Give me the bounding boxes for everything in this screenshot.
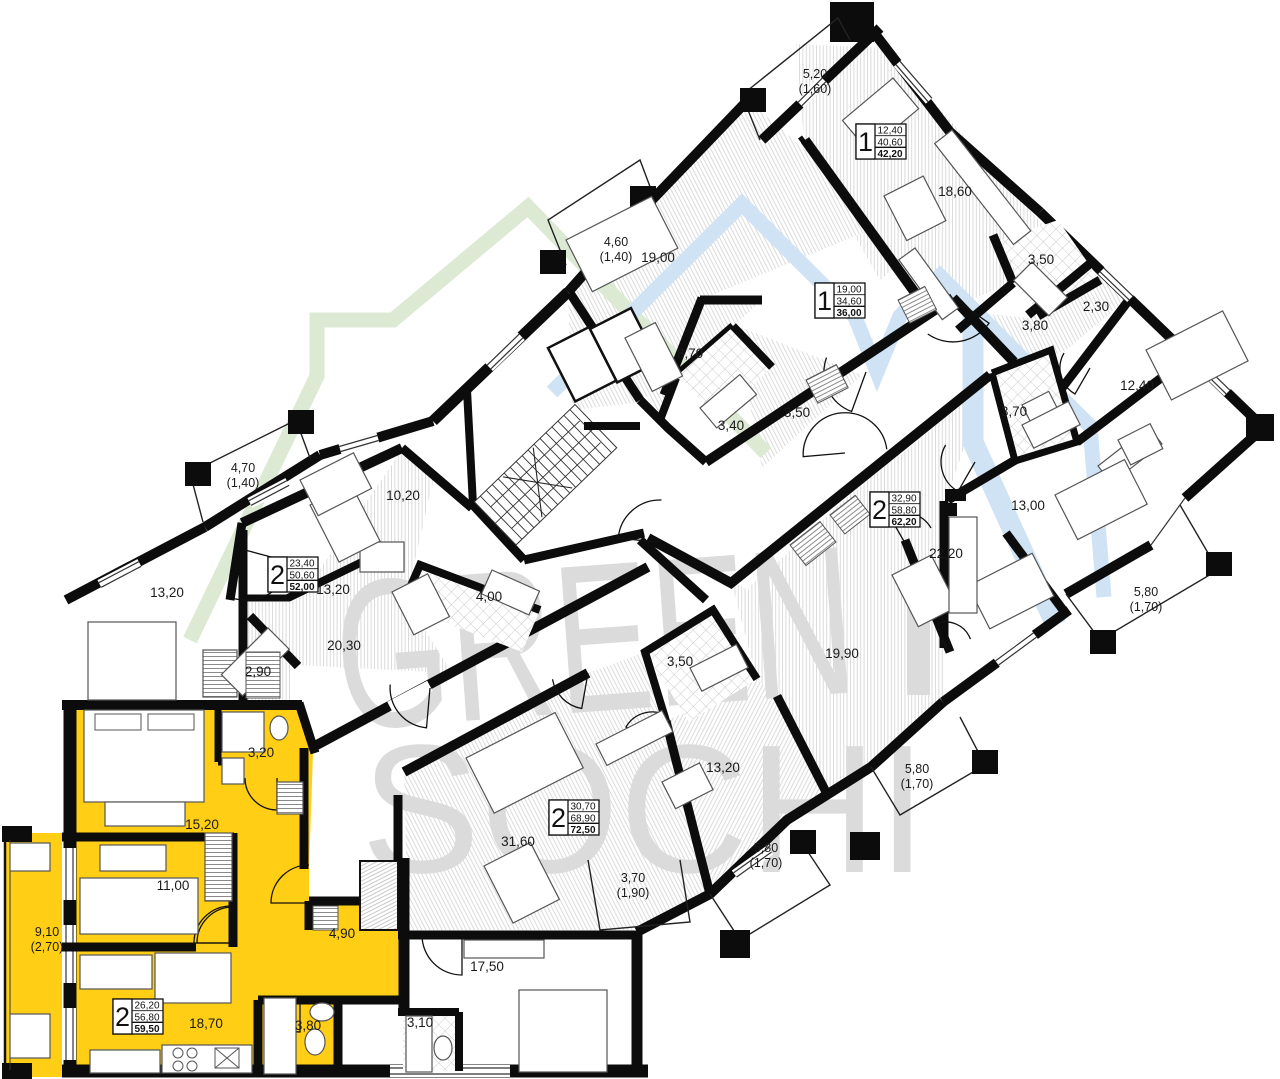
svg-text:13,20: 13,20 <box>150 585 184 600</box>
svg-text:2: 2 <box>551 803 566 833</box>
svg-text:13,00: 13,00 <box>1011 498 1045 513</box>
svg-text:50,60: 50,60 <box>290 570 315 581</box>
svg-text:42,20: 42,20 <box>878 149 903 160</box>
svg-text:11,00: 11,00 <box>157 878 190 893</box>
svg-text:1: 1 <box>858 127 873 157</box>
svg-text:12,40: 12,40 <box>878 126 903 137</box>
svg-text:5,80: 5,80 <box>1134 585 1158 599</box>
svg-text:3,40: 3,40 <box>718 418 744 433</box>
svg-text:31,60: 31,60 <box>501 834 535 849</box>
svg-text:3,50: 3,50 <box>667 654 693 669</box>
svg-text:10,20: 10,20 <box>386 488 420 503</box>
svg-text:(1,40): (1,40) <box>227 476 260 490</box>
svg-text:19,90: 19,90 <box>825 646 859 661</box>
svg-text:22,20: 22,20 <box>929 546 963 561</box>
svg-text:18,60: 18,60 <box>938 184 972 199</box>
svg-text:19,00: 19,00 <box>837 285 862 296</box>
svg-text:52,00: 52,00 <box>290 582 315 593</box>
svg-text:3,20: 3,20 <box>248 745 274 760</box>
svg-text:3,10: 3,10 <box>407 1015 433 1030</box>
svg-text:(1,40): (1,40) <box>600 250 633 264</box>
svg-text:(1,70): (1,70) <box>750 856 783 870</box>
svg-text:9,10: 9,10 <box>35 925 59 939</box>
svg-text:3,80: 3,80 <box>295 1018 321 1033</box>
svg-text:(1,90): (1,90) <box>617 886 650 900</box>
svg-text:2: 2 <box>270 560 285 590</box>
svg-text:4,70: 4,70 <box>231 461 255 475</box>
svg-text:20,30: 20,30 <box>327 638 361 653</box>
svg-text:40,60: 40,60 <box>878 137 903 148</box>
svg-text:5,80: 5,80 <box>905 762 929 776</box>
svg-text:18,70: 18,70 <box>189 1016 223 1031</box>
svg-text:19,00: 19,00 <box>641 250 675 265</box>
svg-text:26,20: 26,20 <box>135 1001 160 1012</box>
svg-text:13,20: 13,20 <box>316 582 350 597</box>
svg-text:3,80: 3,80 <box>1022 318 1048 333</box>
svg-text:23,40: 23,40 <box>290 559 315 570</box>
svg-text:2,30: 2,30 <box>1083 299 1109 314</box>
svg-text:8,70: 8,70 <box>677 346 703 361</box>
svg-text:1: 1 <box>817 286 832 316</box>
svg-text:59,50: 59,50 <box>135 1024 160 1035</box>
svg-text:68,90: 68,90 <box>571 813 596 824</box>
svg-text:34,60: 34,60 <box>837 296 862 307</box>
svg-text:4,00: 4,00 <box>476 589 502 604</box>
svg-text:3,70: 3,70 <box>1001 404 1027 419</box>
svg-text:15,20: 15,20 <box>185 817 219 832</box>
svg-text:(1,70): (1,70) <box>1130 600 1163 614</box>
svg-text:2: 2 <box>115 1002 130 1032</box>
svg-text:30,70: 30,70 <box>571 802 596 813</box>
svg-text:4,60: 4,60 <box>604 235 628 249</box>
svg-text:13,20: 13,20 <box>706 760 740 775</box>
svg-text:3,50: 3,50 <box>784 405 810 420</box>
svg-text:56,80: 56,80 <box>135 1012 160 1023</box>
svg-text:5,20: 5,20 <box>803 67 827 81</box>
svg-text:4,90: 4,90 <box>329 926 355 941</box>
svg-text:62,20: 62,20 <box>892 517 917 528</box>
svg-text:12,40: 12,40 <box>1120 378 1154 393</box>
svg-text:36,00: 36,00 <box>837 308 862 319</box>
svg-text:(2,70): (2,70) <box>31 940 64 954</box>
svg-text:(1,70): (1,70) <box>901 777 934 791</box>
svg-text:32,90: 32,90 <box>892 494 917 505</box>
svg-text:17,50: 17,50 <box>470 959 504 974</box>
svg-text:5,80: 5,80 <box>754 841 778 855</box>
svg-text:2: 2 <box>872 495 887 525</box>
svg-text:(1,60): (1,60) <box>799 82 832 96</box>
svg-text:3,50: 3,50 <box>1028 252 1054 267</box>
svg-text:2,90: 2,90 <box>245 664 271 679</box>
svg-text:58,80: 58,80 <box>892 505 917 516</box>
svg-text:3,70: 3,70 <box>621 871 645 885</box>
svg-text:72,50: 72,50 <box>571 825 596 836</box>
